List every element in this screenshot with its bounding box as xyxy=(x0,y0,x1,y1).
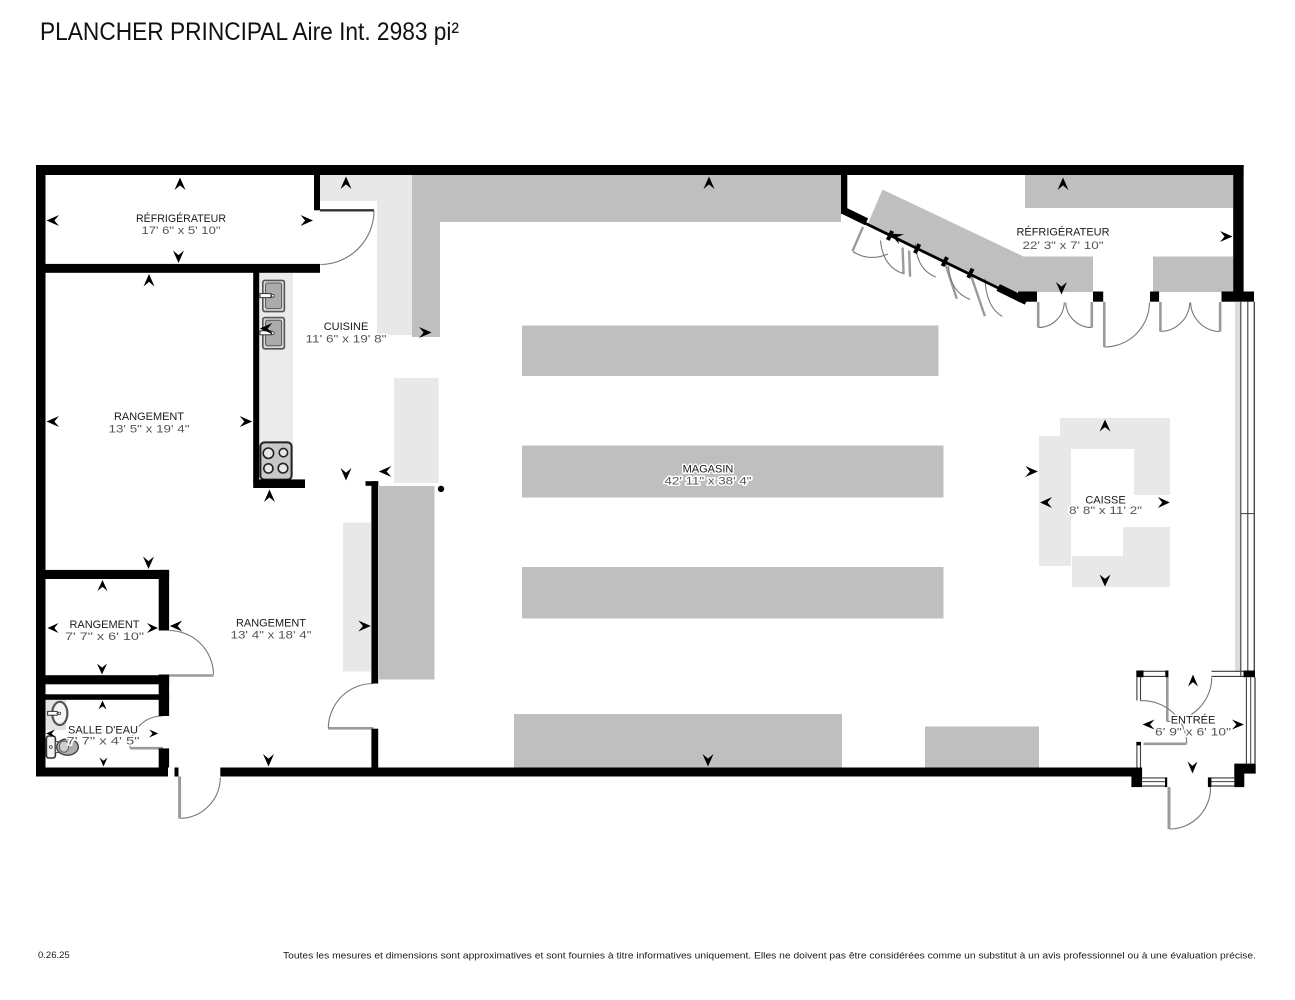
svg-text:CUISINE: CUISINE xyxy=(324,321,369,333)
svg-text:RANGEMENT: RANGEMENT xyxy=(114,411,184,423)
svg-text:RANGEMENT: RANGEMENT xyxy=(70,619,140,631)
svg-text:7' 7" x 6' 10": 7' 7" x 6' 10" xyxy=(65,631,144,643)
svg-text:22' 3" x 7' 10": 22' 3" x 7' 10" xyxy=(1023,240,1104,252)
svg-text:RANGEMENT: RANGEMENT xyxy=(236,618,306,630)
svg-text:17' 6" x 5' 10": 17' 6" x 5' 10" xyxy=(142,225,221,237)
svg-text:13' 5" x 19' 4": 13' 5" x 19' 4" xyxy=(109,423,190,435)
svg-text:MAGASIN: MAGASIN xyxy=(683,464,734,476)
svg-text:11' 6" x 19' 8": 11' 6" x 19' 8" xyxy=(306,334,387,346)
svg-text:ENTRÉE: ENTRÉE xyxy=(1171,713,1216,726)
svg-text:PLANCHER PRINCIPAL Aire Int. 2: PLANCHER PRINCIPAL Aire Int. 2983 pi² xyxy=(40,18,459,46)
svg-text:8' 8" x 11' 2": 8' 8" x 11' 2" xyxy=(1069,505,1142,517)
svg-text:6' 9" x 6' 10": 6' 9" x 6' 10" xyxy=(1155,726,1231,738)
svg-text:RÉFRIGÉRATEUR: RÉFRIGÉRATEUR xyxy=(1017,226,1110,239)
svg-text:0.26.25: 0.26.25 xyxy=(38,950,70,961)
svg-text:Toutes les mesures et dimensio: Toutes les mesures et dimensions sont ap… xyxy=(283,951,1256,962)
svg-text:7' 7" x 4' 5": 7' 7" x 4' 5" xyxy=(67,735,140,747)
svg-text:RÉFRIGÉRATEUR: RÉFRIGÉRATEUR xyxy=(136,212,226,225)
svg-text:42' 11" x 38' 4": 42' 11" x 38' 4" xyxy=(665,475,752,487)
svg-text:13' 4" x 18' 4": 13' 4" x 18' 4" xyxy=(231,630,312,642)
